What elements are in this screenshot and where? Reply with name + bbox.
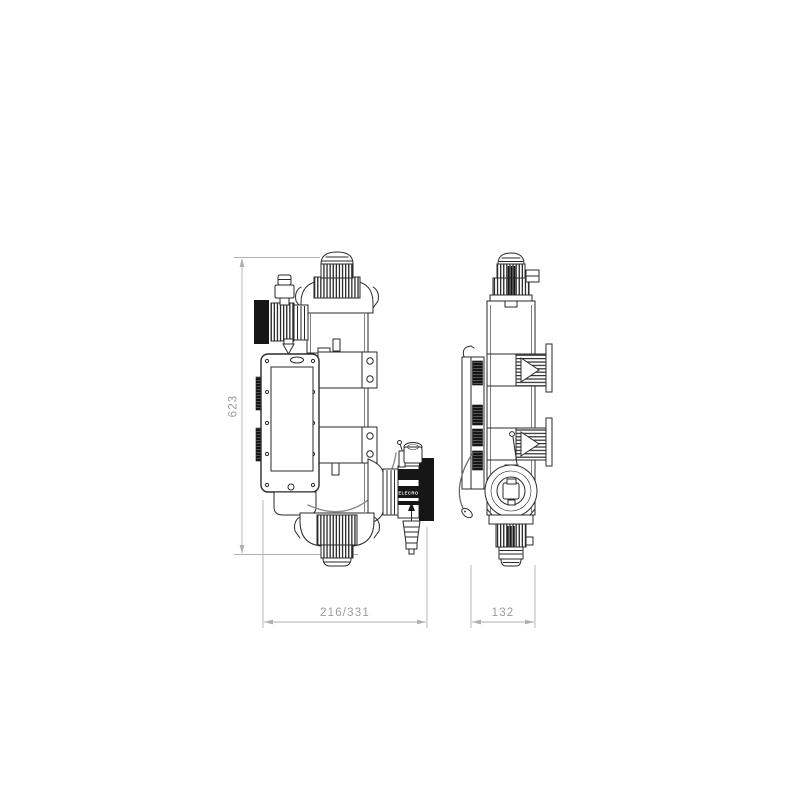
inlet-sensor [275,275,294,305]
inlet-flange [254,300,269,344]
front-bottom-cap [295,513,380,566]
side-bottom-cap [489,515,533,566]
front-view: ELECRO [254,252,434,566]
dimension-width-side-132: 132 [471,565,535,628]
side-view [459,253,552,566]
outlet-flange [419,458,434,521]
bracket-edge-upper [546,344,552,392]
outlet-port: ELECRO [368,458,434,525]
mounting-bracket-upper [318,348,377,388]
front-top-cap [296,252,379,313]
control-box [256,354,319,515]
control-box-window [271,367,313,471]
mounting-bracket-lower [318,427,377,463]
height-dimension-label: 623 [228,395,240,418]
technical-drawing-canvas: 623 216/331 132 [0,0,800,800]
bracket-edge-lower [546,418,552,466]
side-width-dimension-label: 132 [492,607,515,619]
side-top-cap [490,253,539,301]
inlet-port [254,300,308,354]
outlet-sensor [398,441,423,468]
uv-sterilizer-dimension-diagram: 623 216/331 132 [0,0,800,800]
drain-valve [403,521,420,554]
brand-label: ELECRO [398,491,419,496]
front-width-dimension-label: 216/331 [320,607,370,619]
